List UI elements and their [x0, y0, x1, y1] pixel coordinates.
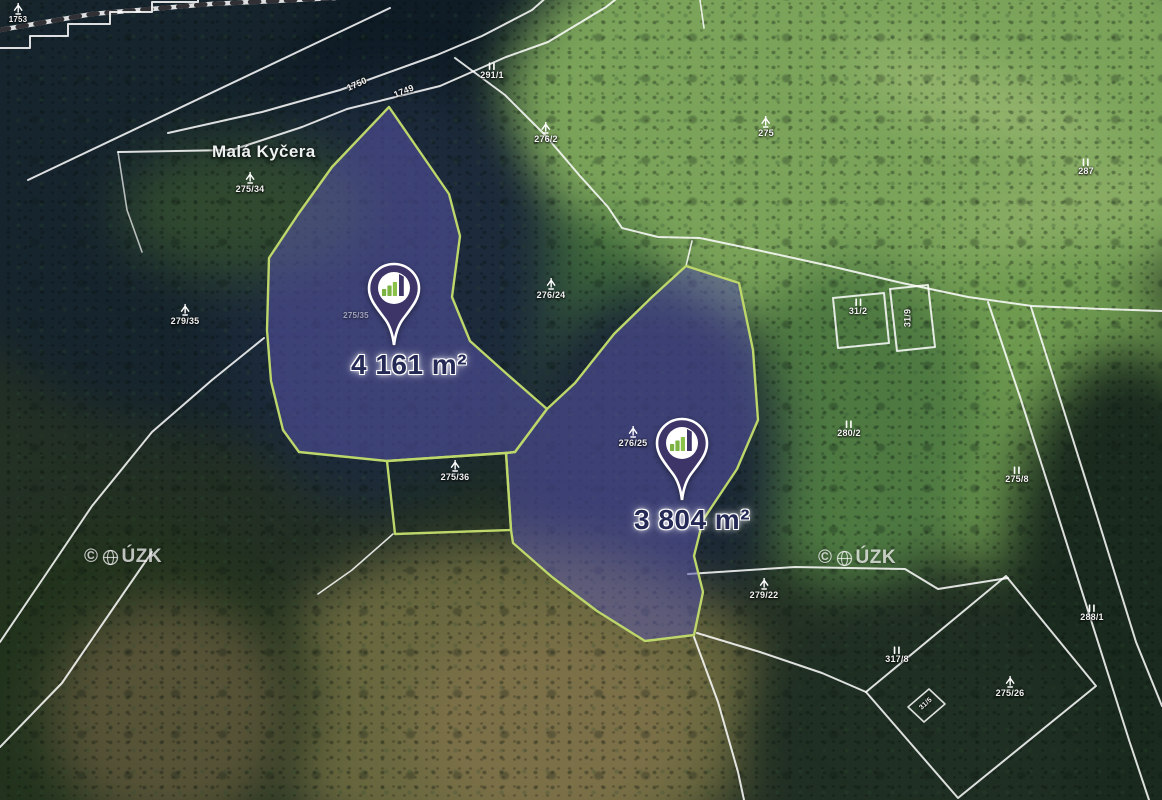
parcel-number-label: 288/1 [1080, 604, 1104, 622]
forest-icon [449, 460, 460, 472]
meadow-icon [892, 646, 903, 654]
forest-icon [627, 426, 638, 438]
parcel-number-label: 276/24 [537, 278, 566, 300]
parcel-number-label: 291/1 [480, 62, 504, 80]
forest-icon [545, 278, 556, 290]
parcel-number-label: 275/36 [441, 460, 470, 482]
globe-icon [102, 549, 119, 566]
globe-icon [836, 550, 853, 567]
parcel-number-label: 279/35 [171, 304, 200, 326]
parcel-number-label: 31/5 [918, 697, 933, 712]
place-name-label: Malá Kyčera [212, 142, 316, 162]
meadow-icon [1012, 466, 1023, 474]
road-number-label: 1749 [393, 83, 416, 99]
forest-icon [758, 578, 769, 590]
forest-icon [12, 3, 23, 15]
parcel-number-label: 317/8 [885, 646, 909, 664]
listing-pin-a[interactable] [366, 261, 422, 353]
meadow-icon [852, 298, 863, 306]
meadow-icon [844, 420, 855, 428]
cuzk-watermark: © ÚZK [818, 547, 896, 569]
parcel-number-label: 275/35 [343, 312, 369, 320]
meadow-icon [1087, 604, 1098, 612]
parcel-number-label: 275/26 [996, 676, 1025, 698]
parcel-number-label: 275/34 [236, 172, 265, 194]
parcel-number-label: 287 [1078, 158, 1094, 176]
forest-icon [541, 122, 552, 134]
parcel-number-label: 275 [758, 116, 774, 138]
meadow-icon [1081, 158, 1092, 166]
forest-icon [179, 304, 190, 316]
cuzk-watermark: © ÚZK [84, 546, 162, 568]
parcel-number-label: 279/22 [750, 578, 779, 600]
parcel-number-label: 1753 [9, 3, 28, 24]
forest-icon [1004, 676, 1015, 688]
parcel-number-label: 280/2 [837, 420, 861, 438]
area-label: 3 804 m² [634, 504, 750, 536]
forest-icon [244, 172, 255, 184]
area-label: 4 161 m² [351, 349, 467, 381]
meadow-icon [487, 62, 498, 70]
parcel-number-label: 31/9 [904, 309, 913, 327]
road-number-label: 1750 [346, 76, 369, 93]
parcel-number-label: 31/2 [849, 298, 867, 316]
parcel-number-label: 276/2 [534, 122, 558, 144]
parcel-number-label: 276/25 [619, 426, 648, 448]
satellite-cadastral-map[interactable]: Malá Kyčera 1753 275/34 1750 1749 291/1 … [0, 0, 1162, 800]
forest-icon [761, 116, 772, 128]
parcel-number-label: 275/8 [1005, 466, 1029, 484]
listing-pin-b[interactable] [654, 416, 710, 508]
parcel-number-layer: Malá Kyčera 1753 275/34 1750 1749 291/1 … [0, 0, 1162, 800]
